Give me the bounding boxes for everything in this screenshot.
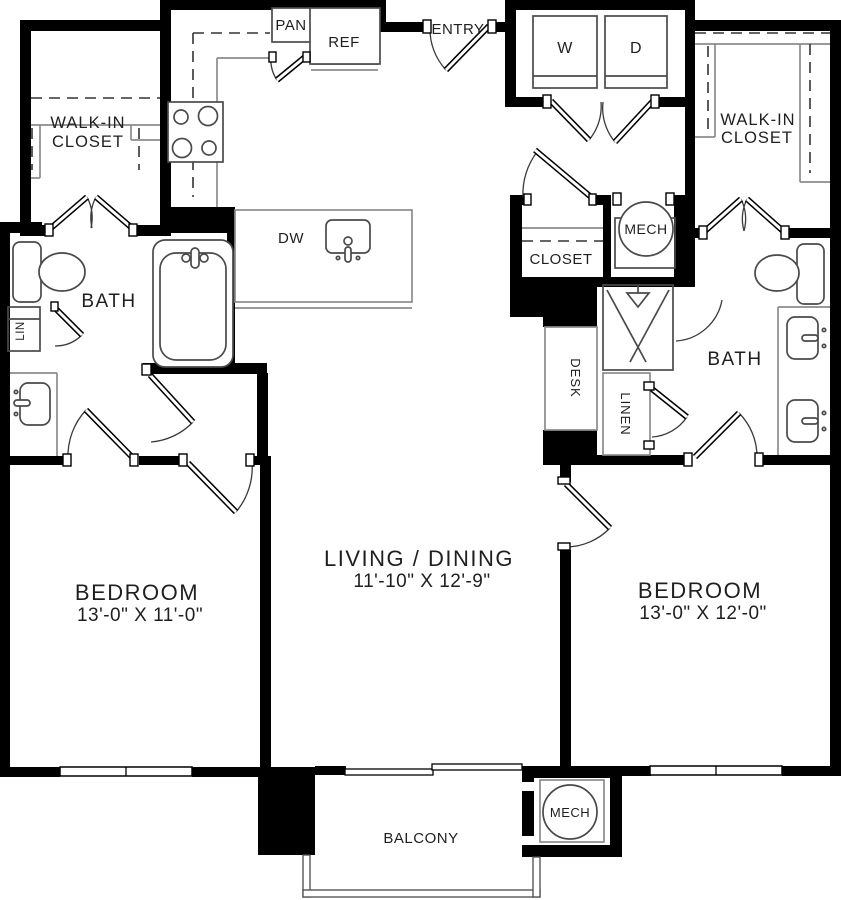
living-dining-label: LIVING / DINING bbox=[324, 546, 514, 571]
walk-in-closet-left-label-1: WALK-IN bbox=[50, 114, 125, 132]
desk-label: DESK bbox=[568, 358, 583, 397]
bath-right-label: BATH bbox=[707, 349, 762, 370]
closet-label: CLOSET bbox=[529, 251, 592, 268]
bathtub-icon bbox=[153, 240, 233, 367]
refrigerator-label: REF bbox=[328, 34, 360, 51]
walk-in-closet-left-label-2: CLOSET bbox=[52, 133, 124, 151]
toilet-right-icon bbox=[755, 244, 824, 304]
vanity-sink-left-icon bbox=[14, 383, 50, 425]
pantry-label: PAN bbox=[275, 17, 306, 34]
mech-lower-label: MECH bbox=[550, 805, 590, 820]
washer-label: W bbox=[557, 40, 573, 57]
bedroom-left-dimensions: 13'-0" X 11'-0" bbox=[77, 605, 203, 626]
lin-label: LIN bbox=[15, 321, 27, 340]
living-dining-dimensions: 11'-10" X 12'-9" bbox=[353, 571, 490, 592]
toilet-left-icon bbox=[13, 242, 85, 302]
dryer-label: D bbox=[630, 40, 642, 57]
bath-left-label: BATH bbox=[81, 291, 136, 312]
kitchen-island bbox=[235, 210, 412, 302]
bedroom-right-dimensions: 13'-0" X 12'-0" bbox=[639, 603, 767, 624]
balcony-label: BALCONY bbox=[383, 830, 458, 847]
balcony-rail-right bbox=[533, 857, 540, 897]
vanity-sink-right-1-icon bbox=[787, 317, 826, 359]
balcony-slider-left bbox=[345, 769, 433, 775]
mech-lower-door-gap-2 bbox=[520, 836, 534, 845]
bedroom-left-label: BEDROOM bbox=[75, 580, 199, 605]
linen-label: LINEN bbox=[618, 392, 633, 435]
bedroom-right-label: BEDROOM bbox=[638, 578, 762, 603]
floor-plan: WALK-IN CLOSET PAN REF ENTRY W D WALK-IN… bbox=[0, 0, 841, 900]
entry-label: ENTRY bbox=[431, 21, 484, 38]
shower-door-arc bbox=[676, 300, 722, 341]
shower-icon bbox=[603, 285, 673, 370]
mech-lower-door-gap-1 bbox=[520, 782, 534, 791]
walk-in-closet-right-label-1: WALK-IN bbox=[720, 111, 795, 129]
mech-upper-label: MECH bbox=[624, 221, 667, 237]
dishwasher-label: DW bbox=[278, 230, 304, 247]
walk-in-closet-right-label-2: CLOSET bbox=[721, 129, 793, 147]
balcony-rail-bottom bbox=[303, 890, 540, 897]
stove-icon bbox=[168, 102, 223, 162]
labels: WALK-IN CLOSET PAN REF ENTRY W D WALK-IN… bbox=[15, 17, 796, 847]
balcony-slider-right bbox=[432, 764, 522, 770]
vanity-sink-right-2-icon bbox=[787, 400, 826, 442]
floor-plan-canvas: WALK-IN CLOSET PAN REF ENTRY W D WALK-IN… bbox=[0, 0, 841, 900]
